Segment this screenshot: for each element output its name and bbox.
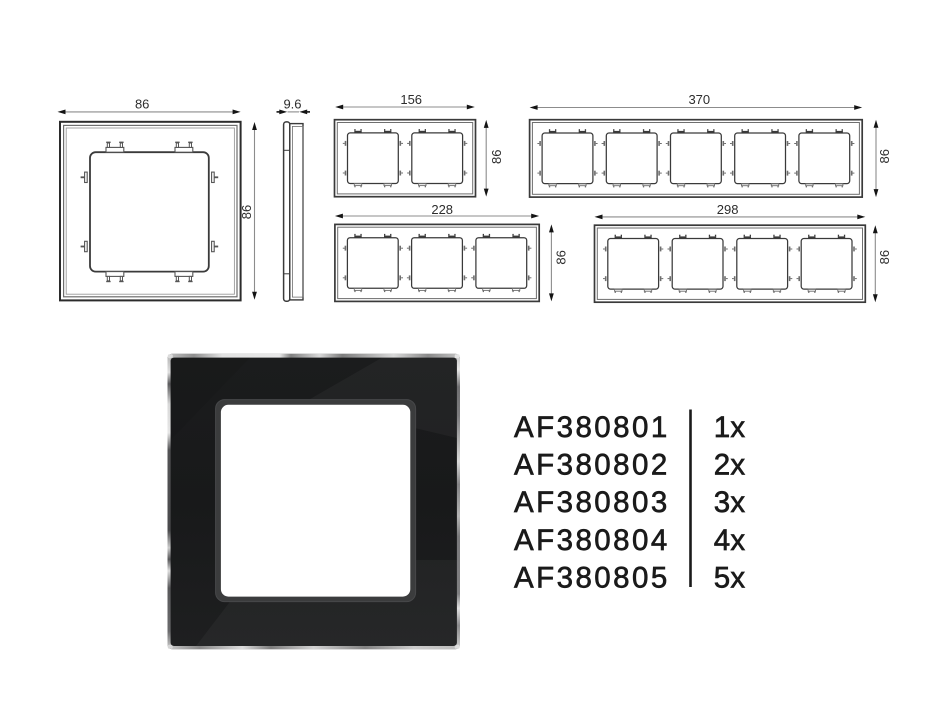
svg-text:AF380805: AF380805 [514, 561, 670, 594]
svg-text:86: 86 [554, 250, 569, 264]
svg-text:3x: 3x [714, 486, 746, 519]
svg-text:AF380803: AF380803 [514, 486, 670, 519]
svg-text:1x: 1x [714, 411, 746, 444]
svg-text:86: 86 [877, 149, 892, 163]
svg-text:86: 86 [489, 149, 504, 163]
svg-text:86: 86 [877, 250, 892, 264]
svg-text:86: 86 [239, 205, 254, 219]
svg-text:86: 86 [135, 96, 149, 111]
svg-text:AF380801: AF380801 [514, 411, 670, 444]
svg-text:156: 156 [400, 92, 422, 107]
svg-text:AF380804: AF380804 [514, 524, 670, 557]
svg-text:AF380802: AF380802 [514, 449, 670, 482]
svg-text:5x: 5x [714, 561, 746, 594]
svg-text:370: 370 [688, 92, 710, 107]
svg-text:298: 298 [717, 202, 739, 217]
svg-text:9.6: 9.6 [283, 96, 301, 111]
svg-text:2x: 2x [714, 449, 746, 482]
svg-text:4x: 4x [714, 524, 746, 557]
svg-text:228: 228 [431, 202, 453, 217]
